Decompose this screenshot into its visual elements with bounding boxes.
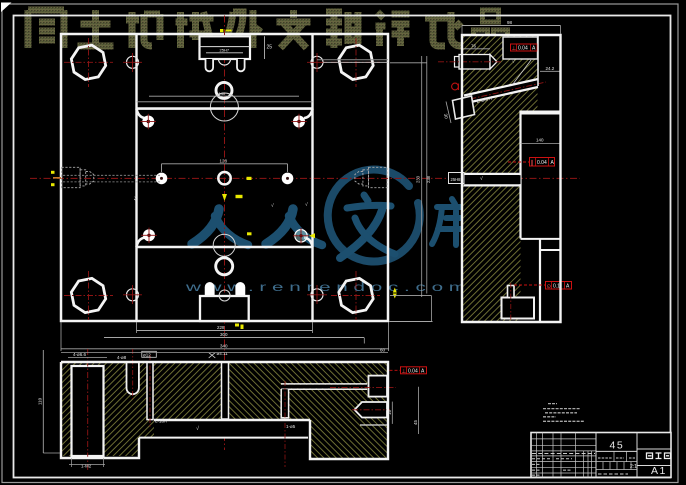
svg-text:ø4.11: ø4.11 — [217, 351, 229, 356]
svg-text:25H8: 25H8 — [451, 177, 462, 182]
svg-text:16: 16 — [387, 409, 392, 415]
svg-text:2:1: 2:1 — [630, 464, 637, 470]
svg-text:0.04: 0.04 — [537, 160, 547, 166]
svg-text:25: 25 — [267, 45, 273, 51]
svg-text:25H7: 25H7 — [220, 47, 230, 52]
svg-text:0.1: 0.1 — [553, 284, 560, 290]
svg-text:340: 340 — [220, 344, 228, 349]
svg-text:233: 233 — [416, 175, 421, 183]
svg-text:4-ø8: 4-ø8 — [117, 355, 127, 360]
svg-text:300: 300 — [220, 332, 228, 337]
svg-text:0.04: 0.04 — [518, 46, 528, 52]
svg-text:238: 238 — [426, 175, 431, 183]
svg-text:√: √ — [271, 202, 274, 209]
svg-text:⊥: ⊥ — [402, 368, 407, 375]
svg-text:A1: A1 — [651, 465, 667, 477]
svg-text:0.04: 0.04 — [408, 369, 418, 375]
svg-text:24.2: 24.2 — [546, 66, 555, 71]
svg-text:⊙: ⊙ — [547, 284, 552, 290]
svg-text:45: 45 — [413, 419, 418, 425]
svg-text:1-M2: 1-M2 — [81, 464, 92, 469]
svg-text:4x: 4x — [133, 195, 138, 201]
svg-text:∥: ∥ — [531, 160, 534, 167]
svg-text:60: 60 — [380, 347, 386, 352]
svg-text:228: 228 — [217, 325, 225, 330]
svg-text:√: √ — [512, 58, 515, 65]
svg-text:76: 76 — [471, 44, 477, 49]
svg-text:⊥: ⊥ — [512, 45, 517, 52]
svg-text:L-18A: L-18A — [155, 419, 167, 424]
svg-text:√: √ — [305, 201, 308, 208]
svg-text:140: 140 — [219, 91, 226, 96]
svg-text:w w w . r e n r e n d o c . c: w w w . r e n r e n d o c . c o m — [184, 282, 466, 294]
svg-text:1-ø5: 1-ø5 — [286, 424, 296, 429]
svg-text:110: 110 — [38, 397, 43, 405]
svg-text:128: 128 — [220, 159, 228, 164]
svg-text:98: 98 — [507, 20, 513, 25]
svg-text:ø12: ø12 — [143, 352, 151, 357]
svg-text:√: √ — [480, 175, 483, 182]
svg-text:45: 45 — [610, 440, 625, 452]
svg-text:140: 140 — [536, 138, 544, 143]
